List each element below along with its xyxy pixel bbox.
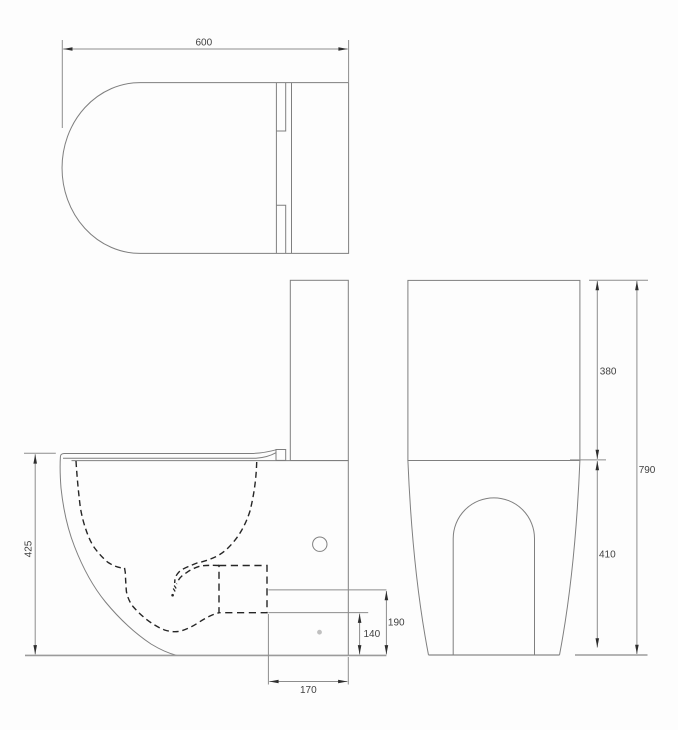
svg-text:425: 425 <box>24 540 35 557</box>
svg-text:600: 600 <box>196 38 213 49</box>
svg-text:190: 190 <box>388 617 405 628</box>
svg-text:790: 790 <box>639 465 656 476</box>
svg-text:170: 170 <box>300 685 317 696</box>
svg-text:140: 140 <box>364 629 381 640</box>
svg-text:410: 410 <box>599 550 616 561</box>
svg-text:380: 380 <box>600 366 617 377</box>
